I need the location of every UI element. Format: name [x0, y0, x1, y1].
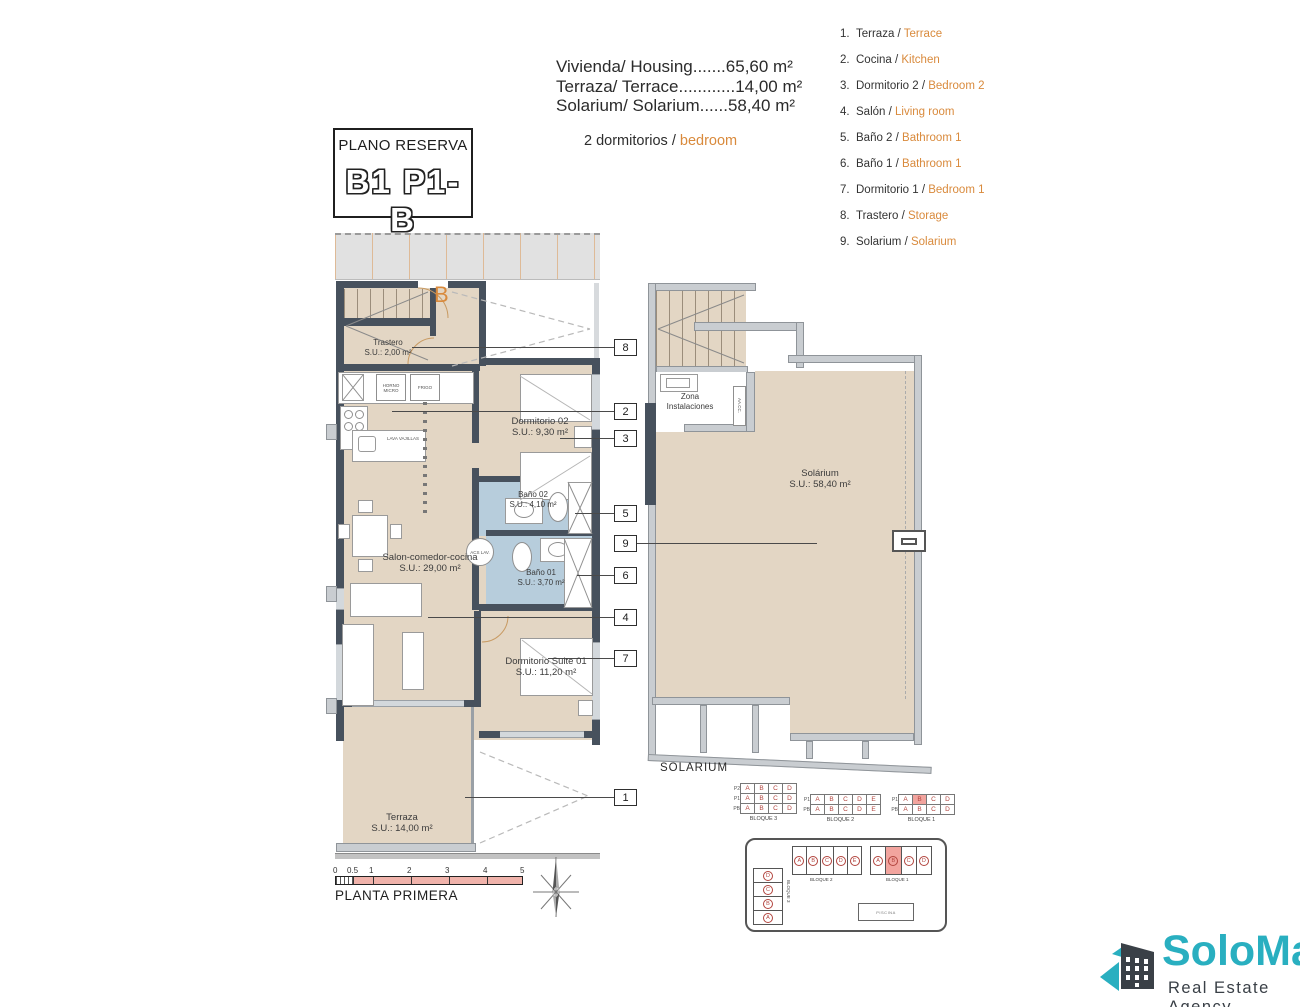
room-label-bano2: Baño 02 S.U.: 4,10 m²	[478, 490, 588, 509]
bedrooms-en: bedroom	[680, 133, 737, 149]
legend-es: Solarium /	[856, 236, 908, 248]
wall-dorm2-top	[480, 358, 600, 365]
legend-es: Terraza /	[856, 28, 901, 40]
siteplan-bloque2: A B C D E	[792, 846, 862, 875]
wall-gray	[790, 733, 914, 741]
bedrooms-es: 2 dormitorios /	[584, 133, 676, 149]
room-area: S.U.: 29,00 m²	[352, 563, 508, 574]
block-label: BLOQUE 1	[888, 817, 955, 823]
wall-gray	[652, 697, 790, 705]
scale-bar	[335, 876, 523, 885]
scale-tick: 1	[369, 866, 373, 875]
logo-name: SoloMar	[1162, 927, 1300, 976]
siteplan-bloque2-label: BLOQUE 2	[810, 877, 833, 882]
unit-circle: A	[794, 856, 804, 866]
legend-item-1: 1.Terraza / Terrace	[840, 28, 1060, 40]
callout-5: 5	[614, 505, 637, 522]
site-unit: A	[871, 847, 885, 874]
room-name: Dormitorio 02	[478, 416, 602, 427]
wall-gray	[648, 283, 656, 757]
vent-box-inner	[666, 378, 690, 388]
callout-9: 9	[614, 535, 637, 552]
legend-en: Bedroom 1	[928, 184, 984, 196]
keyplan-row: PBABCDE	[800, 805, 881, 815]
leader-line-8	[412, 347, 614, 348]
room-name: Salon-comedor-cocina	[352, 552, 508, 563]
dining-table	[352, 515, 388, 557]
window-segment	[500, 731, 584, 738]
keyplan-row: PBABCD	[888, 805, 955, 815]
unit-cell: D	[852, 804, 867, 815]
floorplan-page: Vivienda/ Housing.......65,60 m² Terraza…	[0, 0, 1300, 1007]
legend-num: 9.	[840, 236, 856, 248]
legend-item-4: 4.Salón / Living room	[840, 106, 1060, 118]
porch-pillar	[752, 705, 759, 753]
solomar-logo-icon	[1098, 937, 1162, 995]
unit-circle: E	[850, 856, 860, 866]
wall-segment	[479, 281, 486, 366]
siteplan-bloque1-label: BLOQUE 1	[886, 877, 909, 882]
scale-segment	[411, 877, 449, 884]
solarium-caption: SOLARIUM	[660, 762, 728, 774]
bedrooms-line: 2 dormitorios / bedroom	[584, 133, 737, 149]
scale-tick: 2	[407, 866, 411, 875]
unit-circle: B	[808, 856, 818, 866]
aacc-box: AA.CC.	[733, 386, 746, 426]
legend-en: Living room	[895, 106, 954, 118]
legend-es: Dormitorio 2 /	[856, 80, 925, 92]
solarium-floor	[656, 432, 756, 703]
legend-num: 6.	[840, 158, 856, 170]
room-name: Baño 02	[478, 490, 588, 500]
room-name: Solárium	[752, 468, 888, 479]
site-unit: B	[754, 897, 782, 911]
unit-circle: D	[919, 856, 929, 866]
site-unit: E	[847, 847, 861, 874]
wall-gray	[746, 372, 755, 432]
unit-circle: C	[904, 856, 914, 866]
site-unit: D	[754, 869, 782, 883]
room-label-salon: Salon-comedor-cocina S.U.: 29,00 m²	[352, 552, 508, 574]
callout-8: 8	[614, 339, 637, 356]
wall-gray	[694, 322, 804, 331]
window-symbol-inner	[901, 538, 917, 545]
wall-light-segment	[594, 283, 599, 361]
legend-item-6: 6.Baño 1 / Bathroom 1	[840, 158, 1060, 170]
legend-en: Kitchen	[901, 54, 939, 66]
legend-item-5: 5.Baño 2 / Bathroom 1	[840, 132, 1060, 144]
scale-segment	[487, 877, 522, 884]
unit-circle: A	[763, 913, 773, 923]
site-unit: A	[754, 911, 782, 924]
legend-es: Dormitorio 1 /	[856, 184, 925, 196]
legend-item-2: 2.Cocina / Kitchen	[840, 54, 1060, 66]
site-unit: D	[916, 847, 931, 874]
site-unit: C	[754, 883, 782, 897]
siteplan-bloque1: A B C D	[870, 846, 932, 875]
area-line-solarium: Solarium/ Solarium......58,40 m²	[556, 96, 802, 116]
leader-line-4	[428, 617, 614, 618]
agency-logo: SoloMar Real Estate Agency	[1098, 935, 1298, 1005]
unit-cell: A	[810, 804, 825, 815]
pillar	[326, 586, 337, 602]
chair	[390, 524, 402, 539]
legend-es: Salón /	[856, 106, 892, 118]
room-label-zona: Zona Instalaciones	[660, 392, 720, 411]
room-area: S.U.: 2,00 m²	[343, 348, 433, 358]
pool: PISCINA	[858, 903, 914, 921]
unit-cell: B	[824, 804, 839, 815]
bed	[520, 374, 592, 422]
room-area: S.U.: 58,40 m²	[752, 479, 888, 490]
chair	[338, 524, 350, 539]
coffee-table	[402, 632, 424, 690]
site-unit: D	[833, 847, 847, 874]
unit-cell: C	[768, 803, 783, 814]
sofa	[350, 583, 422, 617]
unit-circle: D	[836, 856, 846, 866]
stairs-main	[344, 289, 432, 318]
room-label-trastero: Trastero S.U.: 2,00 m²	[343, 338, 433, 357]
legend-num: 2.	[840, 54, 856, 66]
logo-tagline: Real Estate Agency	[1168, 979, 1298, 1007]
room-name: Dormitorio Suite 01	[486, 656, 606, 667]
room-area: S.U.: 9,30 m²	[478, 427, 602, 438]
pillar	[326, 424, 337, 440]
leader-line-9	[636, 543, 817, 544]
legend-en: Bathroom 1	[902, 132, 961, 144]
sofa-l	[342, 624, 374, 706]
porch-pillar	[862, 741, 869, 759]
scale-tick: 5	[520, 866, 524, 875]
keyplan-row: PBABCD	[730, 804, 797, 814]
solarium-floor	[790, 703, 914, 733]
keyplan-bloque1: P1ABCD PBABCD BLOQUE 1	[888, 795, 955, 823]
island-sink	[358, 436, 376, 452]
legend-es: Cocina /	[856, 54, 898, 66]
scale-segment	[449, 877, 487, 884]
unit-circle: B	[888, 856, 898, 866]
roof-hatch-band	[335, 233, 600, 280]
wall-top	[336, 281, 418, 288]
unit-circle: C	[822, 856, 832, 866]
nightstand	[578, 700, 593, 716]
area-summary: Vivienda/ Housing.......65,60 m² Terraza…	[556, 57, 802, 116]
burner	[344, 410, 353, 419]
unit-circle: C	[763, 885, 773, 895]
callout-1: 1	[614, 789, 637, 806]
callout-2: 2	[614, 403, 637, 420]
wall-suite-left	[474, 611, 481, 707]
unit-cell: D	[782, 803, 797, 814]
legend-es: Baño 1 /	[856, 158, 899, 170]
unit-cell: A	[898, 804, 913, 815]
reserva-title: PLANO RESERVA	[335, 137, 471, 154]
unit-cell: A	[740, 803, 755, 814]
room-label-terraza: Terraza S.U.: 14,00 m²	[346, 812, 458, 834]
legend-en: Solarium	[911, 236, 956, 248]
kitchen-sink	[342, 374, 364, 401]
area-line-housing: Vivienda/ Housing.......65,60 m²	[556, 57, 802, 77]
legend-num: 1.	[840, 28, 856, 40]
wall-gray	[648, 283, 756, 291]
legend-es: Trastero /	[856, 210, 905, 222]
legend-num: 7.	[840, 184, 856, 196]
burner	[355, 410, 364, 419]
siteplan-bloque3-label: BLOQUE 3	[786, 880, 791, 903]
plan-caption: PLANTA PRIMERA	[335, 888, 458, 903]
scale-segment	[353, 877, 373, 884]
callout-4: 4	[614, 609, 637, 626]
pillar	[326, 698, 337, 714]
unit-cell: E	[866, 804, 881, 815]
wall-dark-segment	[645, 403, 656, 505]
site-unit: C	[901, 847, 916, 874]
unit-cell: B	[754, 803, 769, 814]
callout-6: 6	[614, 567, 637, 584]
leader-line-5	[575, 513, 614, 514]
legend-en: Bathroom 1	[902, 158, 961, 170]
site-unit: A	[793, 847, 806, 874]
leader-line-1	[465, 797, 614, 798]
terrace-parapet	[336, 843, 476, 852]
block-label: BLOQUE 3	[730, 816, 797, 822]
porch-pillar	[700, 705, 707, 753]
oven-microwave-box: HORNO MICRO	[376, 374, 406, 401]
block-label: BLOQUE 2	[800, 817, 881, 823]
unit-cell: C	[838, 804, 853, 815]
wall-gray	[788, 355, 922, 363]
unit-cell: C	[926, 804, 941, 815]
room-area: S.U.: 14,00 m²	[346, 823, 458, 834]
site-unit: B	[806, 847, 820, 874]
legend-en: Terrace	[904, 28, 942, 40]
legend-num: 3.	[840, 80, 856, 92]
site-unit-highlighted: B	[885, 847, 900, 874]
keyplan-bloque3: P2ABCD P1ABCD PBABCD BLOQUE 3	[730, 784, 797, 822]
unit-circle: D	[763, 871, 773, 881]
leader-line-2	[392, 411, 614, 412]
unit-letter: B	[434, 282, 449, 308]
porch-pillar	[806, 741, 813, 759]
void-top-right	[480, 288, 593, 360]
scale-tick: 0	[333, 866, 337, 875]
solarium-floor	[755, 371, 914, 703]
scale-segment	[336, 877, 353, 884]
scale-tick: 4	[483, 866, 487, 875]
room-area: S.U.: 4,10 m²	[478, 500, 588, 510]
room-area: S.U.: 3,70 m²	[486, 578, 596, 588]
leader-line-3	[560, 438, 614, 439]
area-line-terrace: Terraza/ Terrace............14,00 m²	[556, 77, 802, 97]
room-label-solarium: Solárium S.U.: 58,40 m²	[752, 468, 888, 490]
callout-3: 3	[614, 430, 637, 447]
legend-num: 5.	[840, 132, 856, 144]
reserva-code: B1 P1-B	[335, 163, 471, 239]
unit-circle: A	[873, 856, 883, 866]
unit-cell: B	[912, 804, 927, 815]
legend-item-8: 8.Trastero / Storage	[840, 210, 1060, 222]
room-label-dorm2: Dormitorio 02 S.U.: 9,30 m²	[478, 416, 602, 438]
compass-rose	[530, 856, 582, 918]
room-name: Terraza	[346, 812, 458, 823]
plano-reserva-box: PLANO RESERVA B1 P1-B	[333, 128, 473, 218]
legend-en: Bedroom 2	[928, 80, 984, 92]
scale-tick: 0.5	[347, 866, 358, 875]
room-label-suite: Dormitorio Suite 01 S.U.: 11,20 m²	[486, 656, 606, 678]
unit-circle: B	[763, 899, 773, 909]
legend-item-7: 7.Dormitorio 1 / Bedroom 1	[840, 184, 1060, 196]
wall-segment	[336, 364, 480, 371]
legend-num: 8.	[840, 210, 856, 222]
wall-segment	[336, 318, 432, 326]
room-name: Trastero	[343, 338, 433, 348]
chair	[358, 500, 373, 513]
window-segment	[336, 588, 344, 610]
callout-7: 7	[614, 650, 637, 667]
room-area: S.U.: 11,20 m²	[486, 667, 606, 678]
window-segment	[592, 642, 600, 720]
legend-num: 4.	[840, 106, 856, 118]
site-unit: C	[820, 847, 834, 874]
window-symbol	[892, 530, 926, 552]
fridge-box: FRIGO	[410, 374, 440, 401]
scale-segment	[373, 877, 411, 884]
unit-cell: D	[940, 804, 955, 815]
legend-es: Baño 2 /	[856, 132, 899, 144]
keyplan-bloque2: P1ABCDE PBABCDE BLOQUE 2	[800, 795, 881, 823]
legend-item-9: 9.Solarium / Solarium	[840, 236, 1060, 248]
legend-item-3: 3.Dormitorio 2 / Bedroom 2	[840, 80, 1060, 92]
dishwasher-label: LAVA VAJILLAS	[382, 436, 424, 454]
legend-en: Storage	[908, 210, 948, 222]
scale-tick: 3	[445, 866, 449, 875]
siteplan-bloque3: D C B A	[753, 868, 783, 925]
terrace-railing	[471, 707, 474, 847]
